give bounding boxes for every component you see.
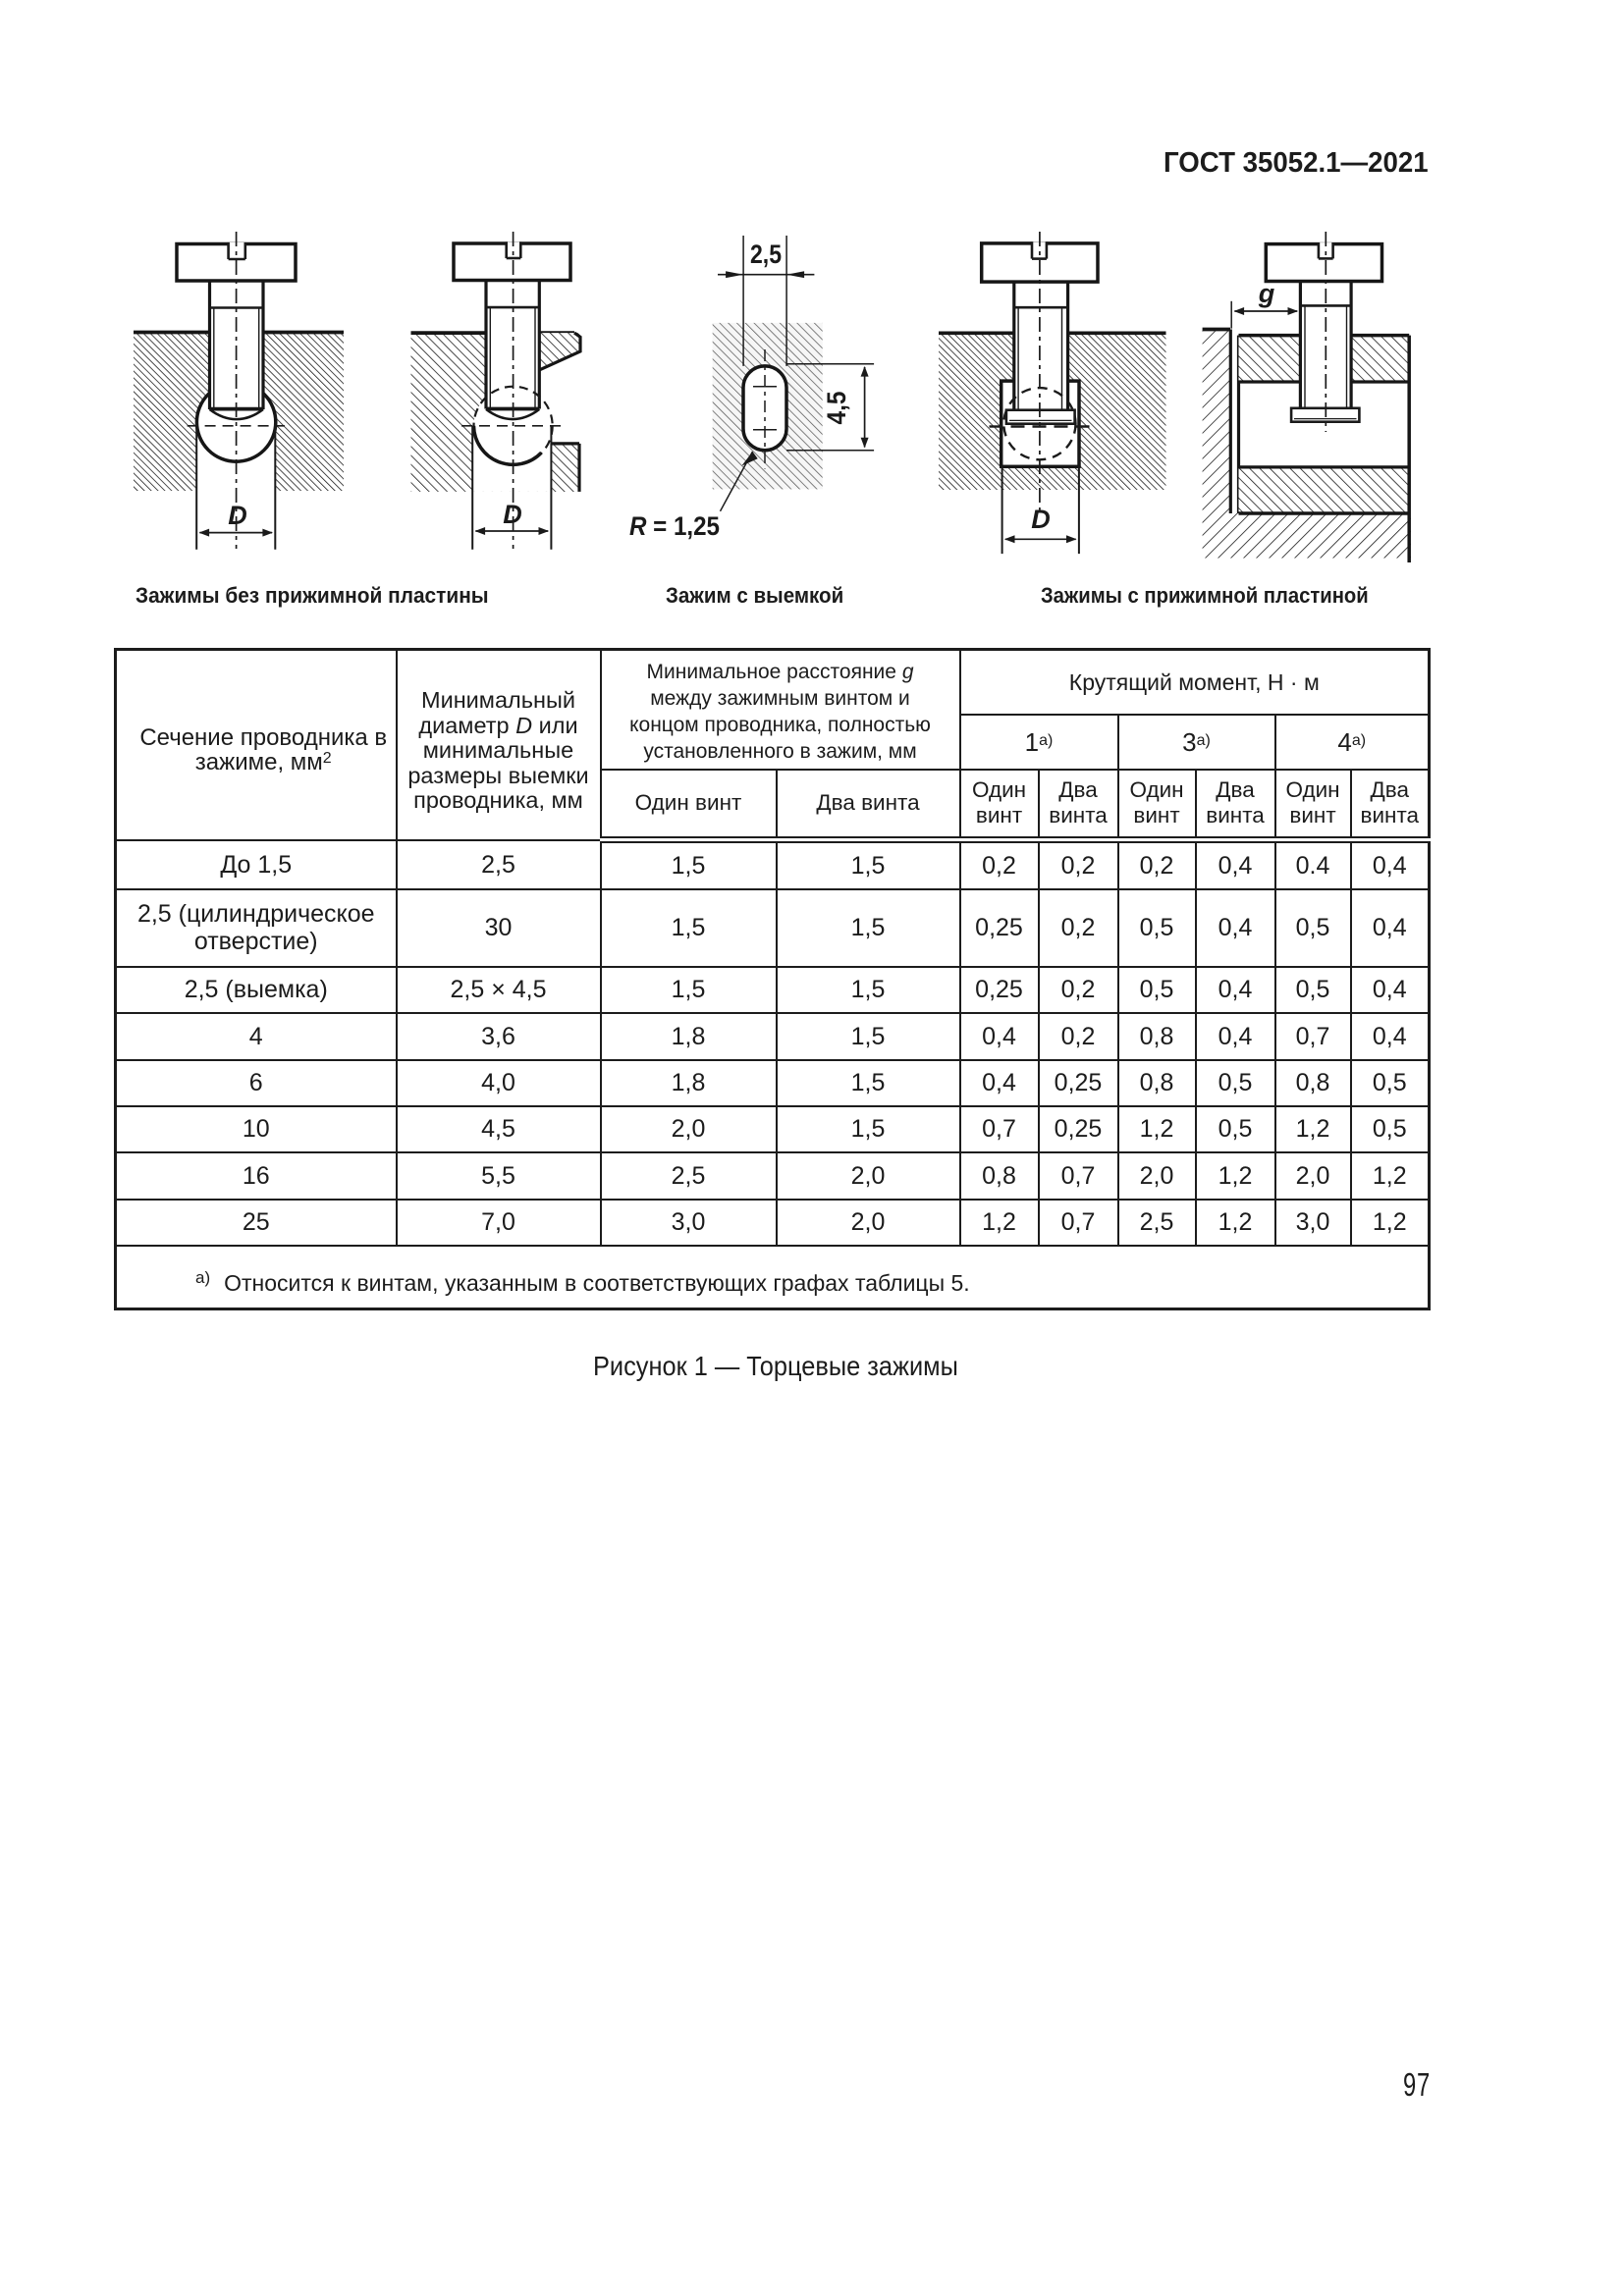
- svg-text:D: D: [228, 501, 247, 530]
- svg-text:g: g: [1258, 279, 1275, 308]
- svg-text:2,5: 2,5: [750, 240, 782, 269]
- svg-text:4,5: 4,5: [822, 392, 851, 425]
- svg-text:D: D: [1031, 505, 1051, 534]
- svg-text:R = 1,25: R = 1,25: [629, 511, 720, 541]
- svg-text:D: D: [503, 500, 522, 529]
